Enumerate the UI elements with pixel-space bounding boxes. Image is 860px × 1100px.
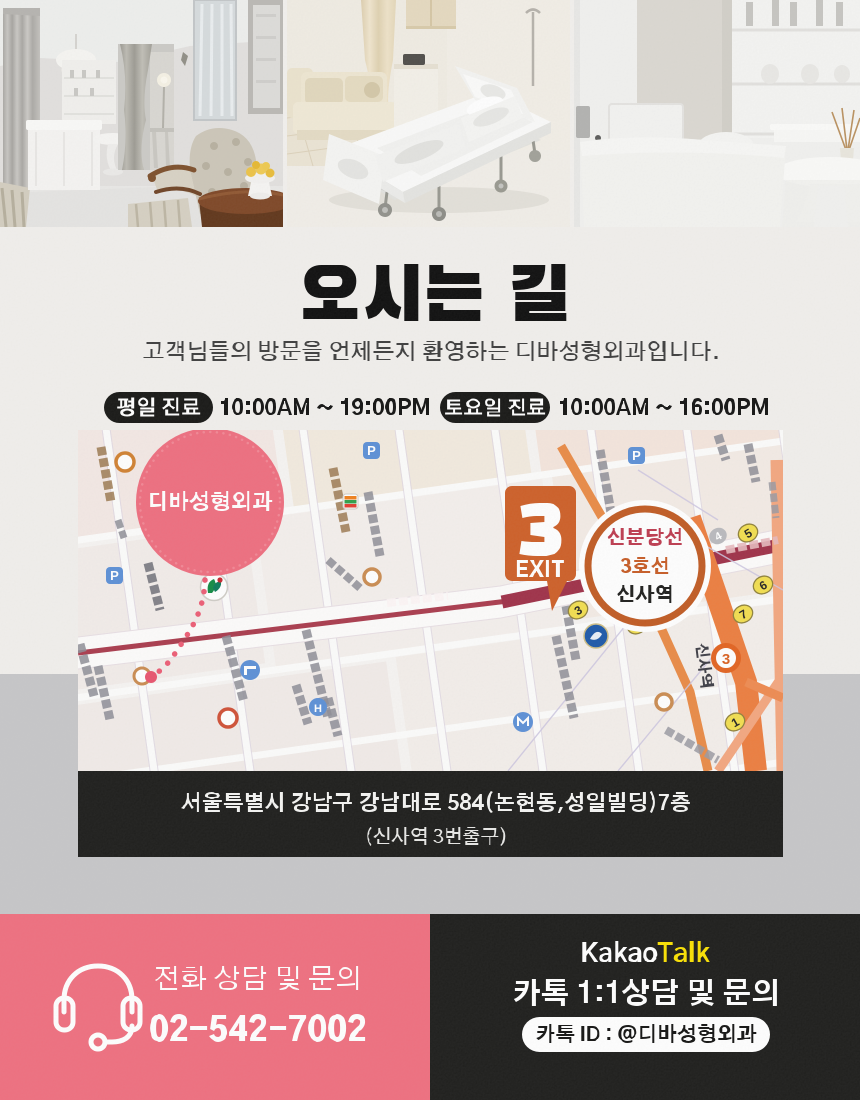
svg-text:P: P: [110, 568, 119, 583]
svg-text:H: H: [314, 703, 322, 715]
svg-text:P: P: [632, 448, 641, 463]
svg-text:P: P: [367, 443, 376, 458]
svg-text:3: 3: [722, 651, 730, 668]
